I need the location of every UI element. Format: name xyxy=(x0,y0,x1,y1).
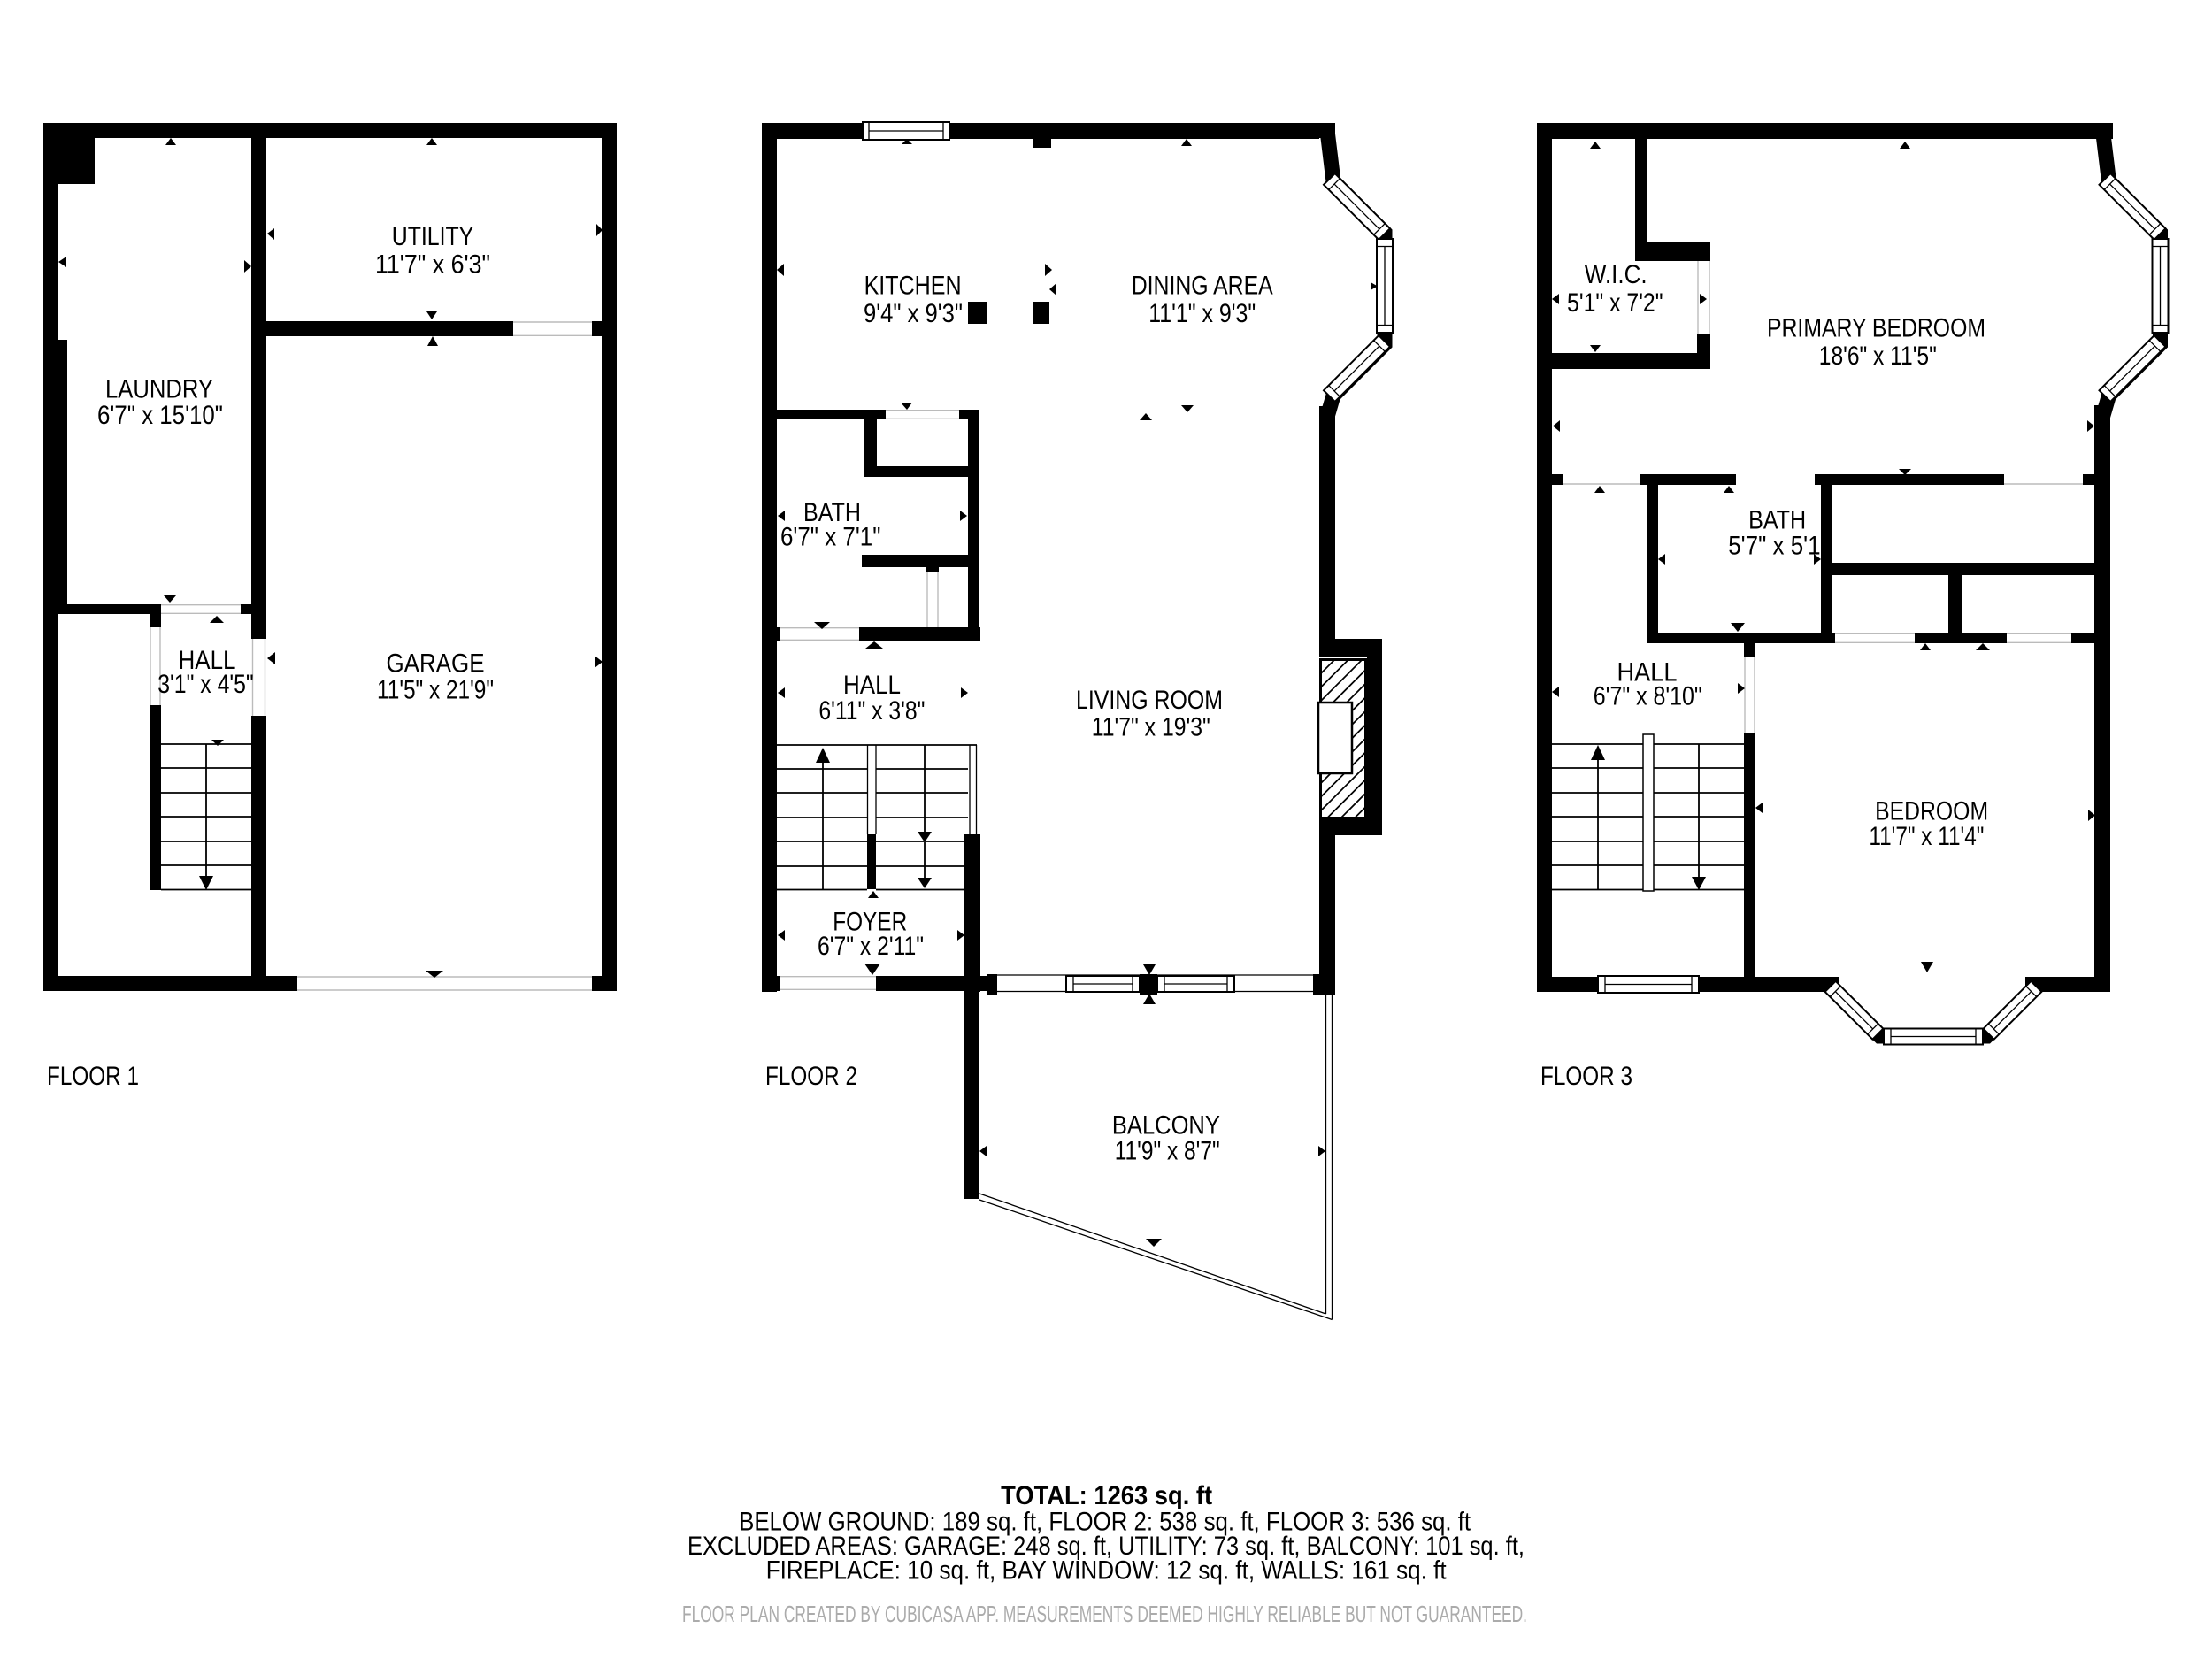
svg-text:6'7" x 2'11": 6'7" x 2'11" xyxy=(818,932,924,961)
svg-text:5'7" x 5'1": 5'7" x 5'1" xyxy=(1728,532,1829,561)
svg-text:6'7" x 15'10": 6'7" x 15'10" xyxy=(97,401,223,430)
svg-text:FIREPLACE: 10 sq. ft, BAY WIND: FIREPLACE: 10 sq. ft, BAY WINDOW: 12 sq.… xyxy=(766,1556,1448,1586)
svg-text:11'7" x 6'3": 11'7" x 6'3" xyxy=(375,250,490,280)
svg-text:3'1" x 4'5": 3'1" x 4'5" xyxy=(157,670,254,699)
svg-text:11'9" x 8'7": 11'9" x 8'7" xyxy=(1115,1137,1220,1166)
svg-text:FLOOR PLAN CREATED BY CUBICASA: FLOOR PLAN CREATED BY CUBICASA APP. MEAS… xyxy=(682,1601,1527,1627)
svg-text:LIVING ROOM: LIVING ROOM xyxy=(1076,686,1223,715)
svg-text:TOTAL: 1263 sq. ft: TOTAL: 1263 sq. ft xyxy=(1001,1481,1212,1510)
svg-text:BALCONY: BALCONY xyxy=(1112,1111,1220,1141)
svg-text:11'5" x 21'9": 11'5" x 21'9" xyxy=(377,676,494,705)
svg-text:FLOOR 3: FLOOR 3 xyxy=(1540,1062,1632,1091)
svg-text:6'11" x 3'8": 6'11" x 3'8" xyxy=(818,696,925,726)
svg-text:6'7" x 8'10": 6'7" x 8'10" xyxy=(1594,681,1702,710)
svg-text:DINING AREA: DINING AREA xyxy=(1132,271,1273,300)
svg-text:18'6" x 11'5": 18'6" x 11'5" xyxy=(1819,342,1937,371)
svg-text:11'7" x 19'3": 11'7" x 19'3" xyxy=(1092,713,1210,742)
svg-text:9'4" x 9'3": 9'4" x 9'3" xyxy=(864,299,963,328)
svg-text:FLOOR 1: FLOOR 1 xyxy=(47,1062,139,1091)
svg-text:PRIMARY BEDROOM: PRIMARY BEDROOM xyxy=(1767,313,1985,342)
svg-text:GARAGE: GARAGE xyxy=(387,649,485,679)
svg-text:W.I.C.: W.I.C. xyxy=(1585,260,1647,289)
svg-text:5'1" x 7'2": 5'1" x 7'2" xyxy=(1567,288,1663,318)
svg-text:KITCHEN: KITCHEN xyxy=(864,271,962,300)
svg-text:6'7" x 7'1": 6'7" x 7'1" xyxy=(780,522,881,551)
svg-text:11'7" x 11'4": 11'7" x 11'4" xyxy=(1869,822,1984,851)
svg-text:LAUNDRY: LAUNDRY xyxy=(105,375,213,404)
svg-text:11'1" x 9'3": 11'1" x 9'3" xyxy=(1148,299,1256,328)
svg-text:UTILITY: UTILITY xyxy=(392,222,474,251)
svg-text:FLOOR 2: FLOOR 2 xyxy=(765,1062,857,1091)
